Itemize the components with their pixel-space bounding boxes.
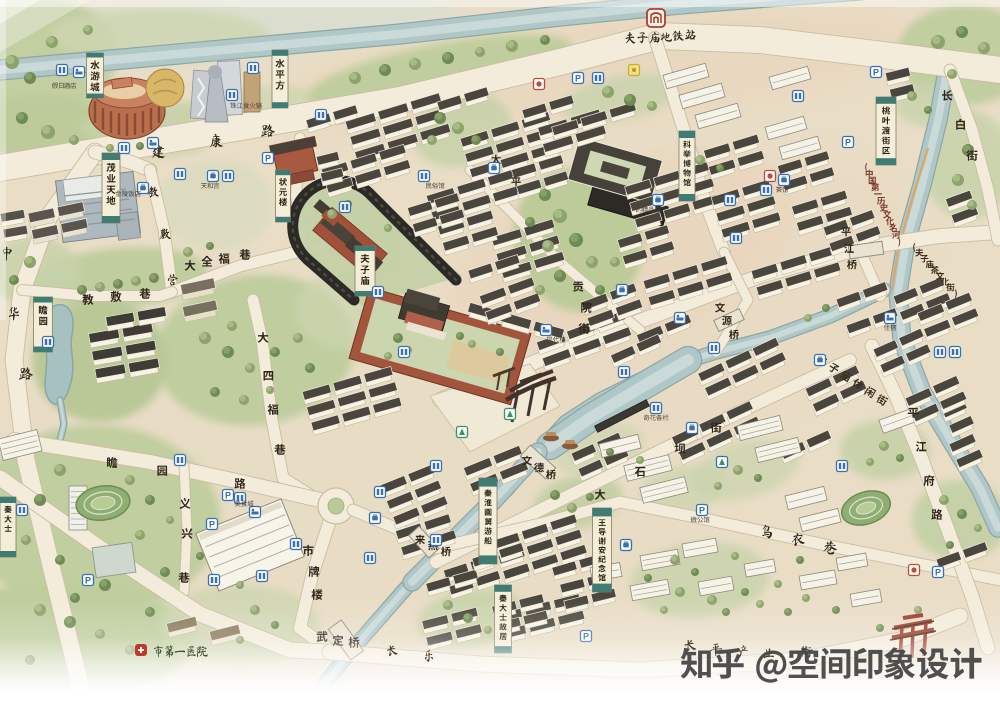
svg-text:P: P <box>265 153 271 163</box>
svg-text:P: P <box>699 505 705 515</box>
svg-text:P: P <box>873 67 879 77</box>
svg-text:P: P <box>85 575 91 585</box>
svg-text:P: P <box>935 567 941 577</box>
svg-text:P: P <box>209 519 215 529</box>
svg-text:P: P <box>575 73 581 83</box>
svg-text:P: P <box>225 490 231 500</box>
svg-text:P: P <box>845 137 851 147</box>
